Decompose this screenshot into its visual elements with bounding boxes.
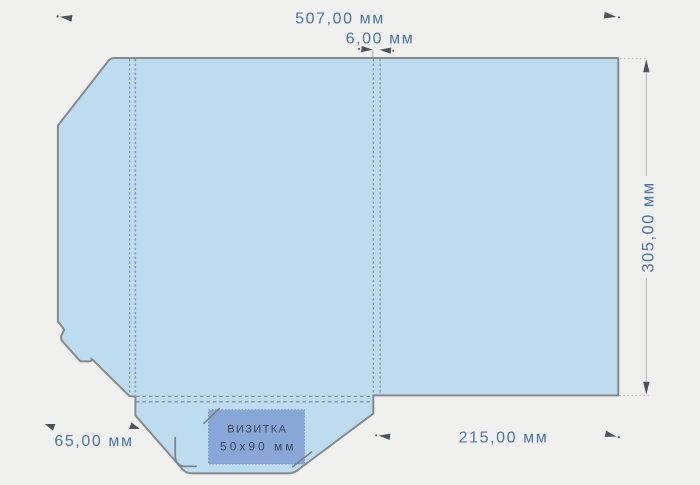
svg-text:6,00 мм: 6,00 мм (346, 31, 415, 48)
svg-text:50х90 мм: 50х90 мм (220, 440, 297, 454)
svg-text:65,00 мм: 65,00 мм (54, 433, 133, 450)
svg-text:ВИЗИТКА: ВИЗИТКА (227, 423, 287, 435)
svg-text:507,00 мм: 507,00 мм (295, 11, 385, 28)
svg-text:305,00 мм: 305,00 мм (640, 181, 658, 272)
svg-text:215,00 мм: 215,00 мм (459, 430, 549, 447)
